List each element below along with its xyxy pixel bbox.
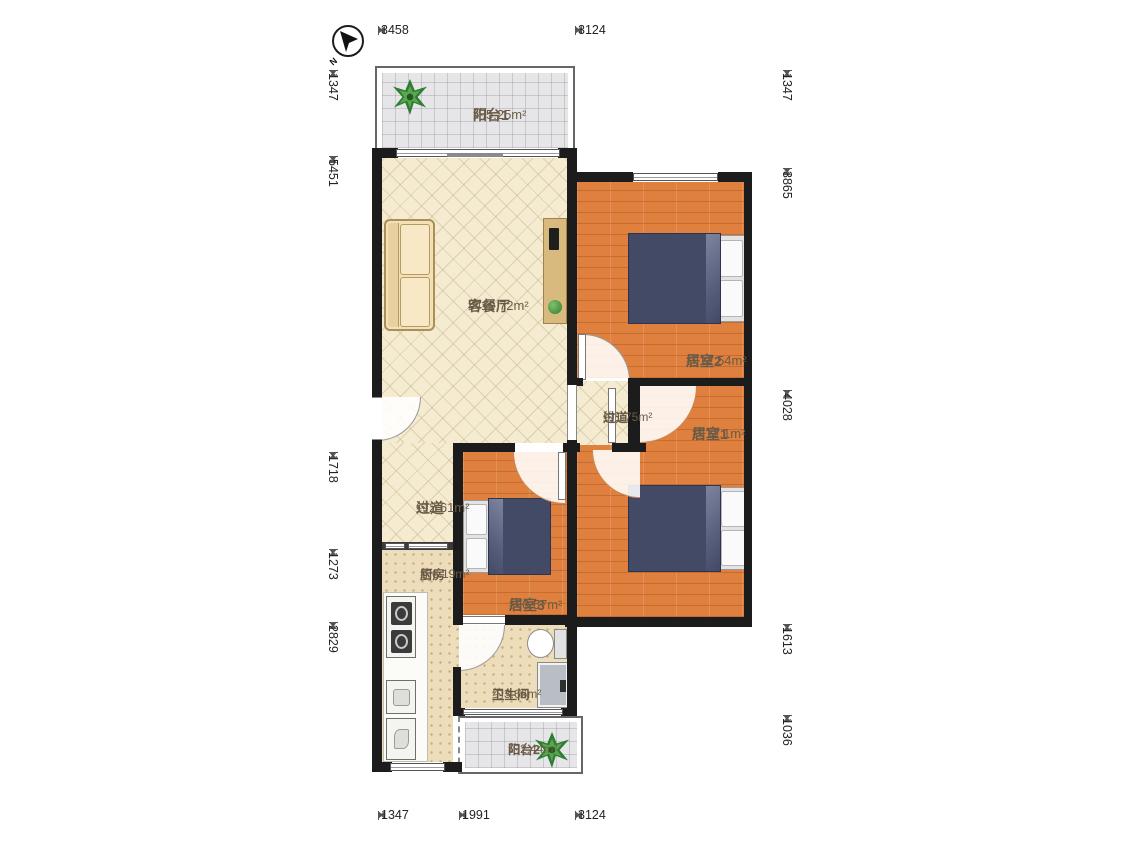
- dim-right-1613: 1613: [778, 624, 796, 712]
- wall: [567, 440, 577, 716]
- dim-top-3124: 3124: [575, 22, 745, 38]
- floor-plan: N: [0, 0, 1125, 844]
- dim-right-1036: 1036: [778, 715, 796, 778]
- wall: [443, 762, 462, 772]
- kitchen-pass-window: [408, 543, 448, 549]
- dim-bottom-1347: 1347: [378, 807, 455, 823]
- dim-left-1347: 1347: [324, 70, 342, 152]
- kitchen-counter-unit: [386, 718, 416, 760]
- stove-burner-icon: [391, 630, 412, 653]
- faucet-icon: [394, 729, 409, 749]
- bed3-blanket-fold: [489, 499, 503, 574]
- wall: [453, 443, 515, 452]
- dim-left-1718: 1718: [324, 452, 342, 546]
- sofa-back: [388, 223, 399, 327]
- plant-icon: [391, 78, 429, 116]
- dim-left-5451: 5451: [324, 156, 342, 448]
- potted-plant-icon: [548, 300, 562, 314]
- bed1-pillow: [721, 530, 746, 566]
- bedroom2-door-leaf: [578, 334, 586, 380]
- balcony-slider-bar: [447, 153, 503, 157]
- kitchen-pass-window: [385, 543, 405, 549]
- room-area: 约12.54m²: [686, 352, 747, 369]
- bathroom-faucet-icon: [560, 680, 566, 692]
- dim-bottom-3124: 3124: [575, 807, 745, 823]
- toilet-tank: [554, 629, 567, 659]
- wall: [453, 443, 463, 625]
- dim-right-3865: 3865: [778, 168, 796, 386]
- wall: [565, 617, 752, 627]
- wall: [561, 708, 577, 716]
- wall: [630, 378, 752, 386]
- dim-left-1273: 1273: [324, 549, 342, 619]
- sofa: [384, 219, 435, 331]
- entry-opening: [372, 397, 382, 440]
- wall: [372, 762, 392, 772]
- dim-bottom-1991: 1991: [459, 807, 568, 823]
- bedroom3-door-leaf: [558, 452, 566, 500]
- stove: [386, 596, 416, 658]
- kitchen-window: [390, 763, 445, 771]
- wall: [744, 172, 752, 627]
- room-area: 约5.25m²: [473, 106, 526, 123]
- room-area: 约1.75m²: [603, 410, 652, 425]
- room-area: 约2.61m²: [416, 499, 469, 516]
- bed3-blanket: [488, 498, 551, 575]
- wall: [372, 148, 382, 397]
- bed2-pillow: [718, 280, 743, 317]
- wall: [718, 172, 752, 182]
- kitchen-sink: [386, 680, 416, 714]
- wall: [612, 443, 646, 452]
- bed2-pillow: [718, 240, 743, 277]
- living-hallway1-opening: [567, 385, 577, 440]
- wall: [453, 615, 463, 625]
- dim-right-4028: 4028: [778, 390, 796, 620]
- wall: [372, 440, 382, 772]
- wall: [567, 172, 633, 182]
- bed1-pillow: [721, 491, 746, 527]
- bed2-blanket: [628, 233, 721, 324]
- bed1-blanket: [628, 485, 721, 572]
- room-area: 约2.44m²: [508, 742, 557, 757]
- room-area: 约19.72m²: [468, 297, 529, 314]
- room-area: 约12.1m²: [692, 425, 745, 442]
- bathroom-window: [463, 709, 563, 715]
- bed2-blanket-fold: [706, 234, 720, 323]
- dim-top-3458: 3458: [378, 22, 568, 38]
- bathroom-door-leaf: [460, 616, 506, 624]
- bed3-pillow: [466, 538, 487, 569]
- wall: [563, 443, 580, 452]
- stove-burner-icon: [391, 602, 412, 625]
- wall: [558, 148, 577, 158]
- wall: [567, 148, 577, 385]
- toilet: [527, 629, 554, 658]
- bedroom2-window: [633, 173, 718, 181]
- dim-right-1347: 1347: [778, 70, 796, 150]
- svg-text:N: N: [328, 56, 339, 68]
- room-area: 约6.19m²: [420, 567, 469, 582]
- room-area: 约3.66m²: [492, 687, 541, 702]
- sofa-cushion: [400, 277, 430, 327]
- kitchen-sink-basin: [393, 689, 410, 706]
- bed1-blanket-fold: [706, 486, 720, 571]
- compass-icon: N: [327, 20, 373, 68]
- room-area: 约6.57m²: [509, 596, 562, 613]
- tv-icon: [549, 228, 559, 250]
- dim-left-2829: 2829: [324, 622, 342, 778]
- wall: [372, 148, 398, 158]
- sofa-cushion: [400, 224, 430, 275]
- hallway2-floor: [382, 443, 453, 542]
